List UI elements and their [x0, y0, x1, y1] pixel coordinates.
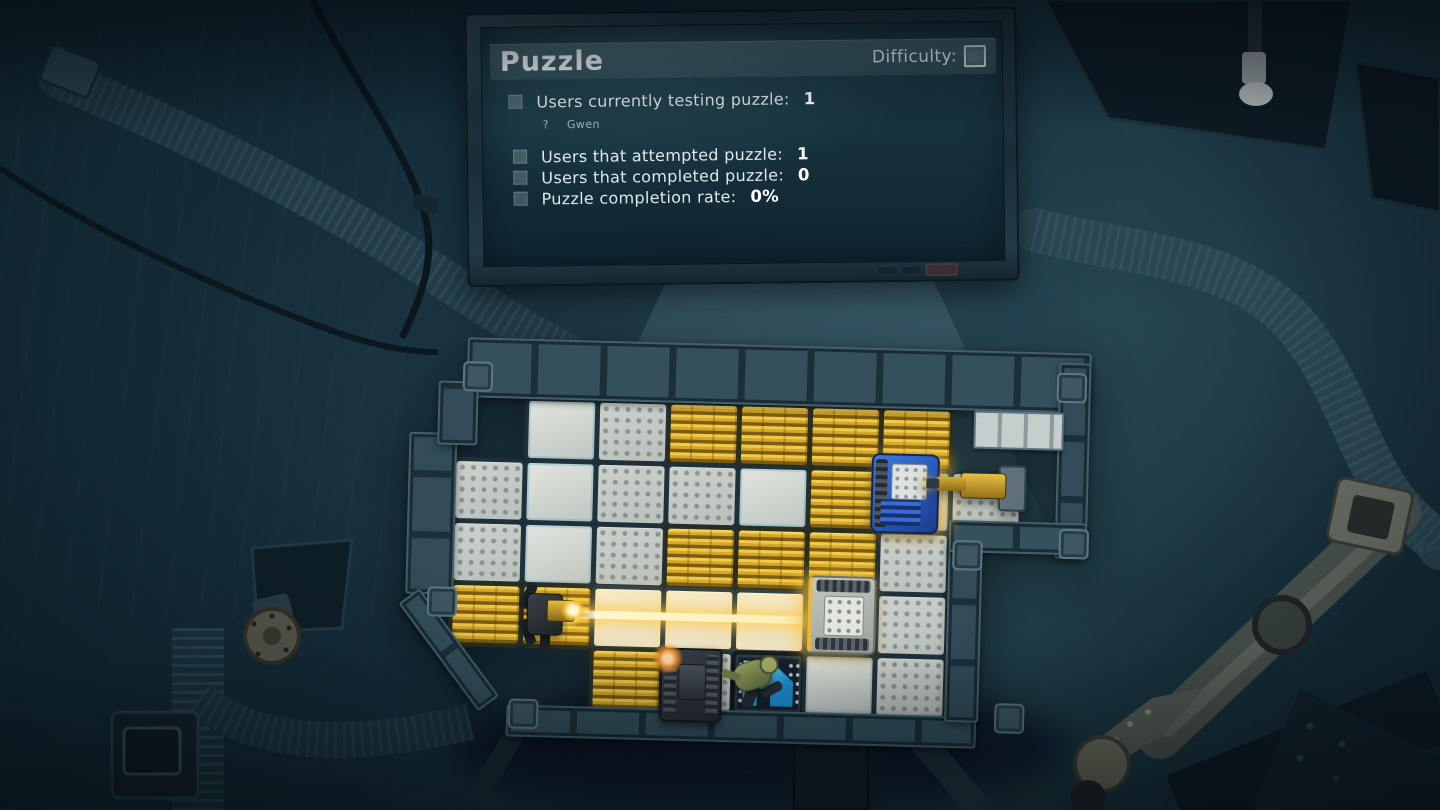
machine-robot-arm[interactable]	[926, 457, 1027, 516]
stat-bullet-icon	[513, 150, 527, 164]
game-viewport: Puzzle Difficulty: Users currently testi…	[0, 0, 1440, 810]
stat-label: Users that attempted puzzle:	[541, 144, 783, 166]
tile-r1c2-dots[interactable]	[597, 465, 664, 524]
screen-header: Puzzle Difficulty:	[490, 38, 996, 80]
arm-segment	[960, 472, 1007, 499]
receiver-tread	[816, 579, 870, 592]
turret-glow	[652, 641, 683, 676]
monitor-button-2[interactable]	[901, 265, 920, 274]
corner-bracket	[1056, 373, 1087, 404]
tester-name: Gwen	[567, 118, 600, 131]
rover-steps	[880, 499, 921, 526]
difficulty-checkbox[interactable]	[964, 45, 986, 67]
stat-value: 1	[797, 144, 809, 163]
tester-bullet-icon: ?	[543, 118, 549, 131]
tile-r1c0-dots[interactable]	[455, 461, 522, 520]
tile-r2c6-dots[interactable]	[879, 534, 946, 593]
tile-r0c4-gold[interactable]	[741, 406, 808, 465]
stat-bullet-icon	[514, 192, 528, 206]
rail-left	[405, 432, 457, 595]
wall-slab-far-right	[1356, 62, 1440, 212]
tile-r0c2-dots[interactable]	[599, 403, 666, 462]
stat-value: 1	[804, 89, 816, 108]
rover-panel	[891, 463, 928, 500]
tile-r2c2-dots[interactable]	[596, 527, 663, 586]
emitter-muzzle-glow	[561, 597, 586, 622]
stat-label: Puzzle completion rate:	[541, 187, 736, 208]
difficulty-field: Difficulty:	[872, 45, 986, 68]
difficulty-label: Difficulty:	[872, 46, 957, 67]
alcove-edge-panels	[973, 411, 1064, 451]
tile-r0c1-white[interactable]	[528, 401, 595, 460]
monitor-screen: Puzzle Difficulty: Users currently testi…	[481, 21, 1006, 267]
tester-row: ? Gwen	[543, 113, 1003, 132]
tile-r1c3-dots[interactable]	[668, 467, 735, 526]
tile-r1c5-gold[interactable]	[810, 470, 877, 529]
tile-r2c1-white[interactable]	[525, 525, 592, 584]
stat-value: 0	[798, 165, 810, 184]
corner-bracket	[508, 698, 539, 729]
machine-laser-emitter[interactable]	[516, 580, 574, 647]
stat-row-testing: Users currently testing puzzle: 1	[508, 86, 1002, 112]
machine-laser-receiver[interactable]	[807, 575, 877, 655]
machine-player[interactable]	[716, 650, 789, 710]
arm-segment	[936, 476, 966, 491]
corner-bracket	[952, 540, 983, 571]
stat-label: Users currently testing puzzle:	[536, 89, 789, 111]
tile-r2c0-dots[interactable]	[454, 523, 521, 582]
monitor-controls	[877, 263, 957, 276]
robot-arm-bottom-right	[1070, 477, 1440, 810]
monitor-button-1[interactable]	[877, 266, 896, 275]
hanging-platform-top-right	[1045, 0, 1352, 150]
machine-turret[interactable]	[659, 647, 723, 723]
stat-bullet-icon	[508, 95, 522, 109]
puzzle-board	[410, 336, 1092, 753]
tile-r2c3-gold[interactable]	[667, 529, 734, 588]
arm-tip	[926, 478, 939, 488]
tile-r4c6-dots[interactable]	[876, 658, 943, 717]
tile-r0c5-gold[interactable]	[812, 408, 879, 467]
turret-core	[678, 663, 707, 700]
screen-title: Puzzle	[500, 45, 604, 77]
receiver-panel	[823, 595, 864, 636]
corner-bracket	[463, 361, 494, 392]
tile-r3c6-dots[interactable]	[878, 596, 945, 655]
tile-r0c3-gold[interactable]	[670, 405, 737, 464]
stat-label: Users that completed puzzle:	[541, 165, 784, 187]
stat-value: 0%	[750, 186, 779, 205]
tile-r4c2-gold[interactable]	[592, 651, 659, 710]
corner-bracket	[994, 703, 1025, 734]
tile-r4c5-white[interactable]	[805, 656, 872, 715]
player-head	[759, 655, 778, 674]
tile-r3c0-gold[interactable]	[452, 585, 519, 644]
corner-bracket	[427, 586, 458, 617]
stat-group: Users that attempted puzzle: 1 Users tha…	[483, 141, 1004, 209]
corner-bracket	[1058, 529, 1089, 560]
tile-r1c4-white[interactable]	[739, 468, 806, 527]
tile-r1c1-white[interactable]	[526, 463, 593, 522]
tile-r2c4-gold[interactable]	[738, 530, 805, 589]
monitor-button-power[interactable]	[925, 263, 957, 275]
stats-monitor: Puzzle Difficulty: Users currently testi…	[464, 7, 1019, 288]
stat-bullet-icon	[513, 171, 527, 185]
receiver-tread	[815, 637, 869, 650]
